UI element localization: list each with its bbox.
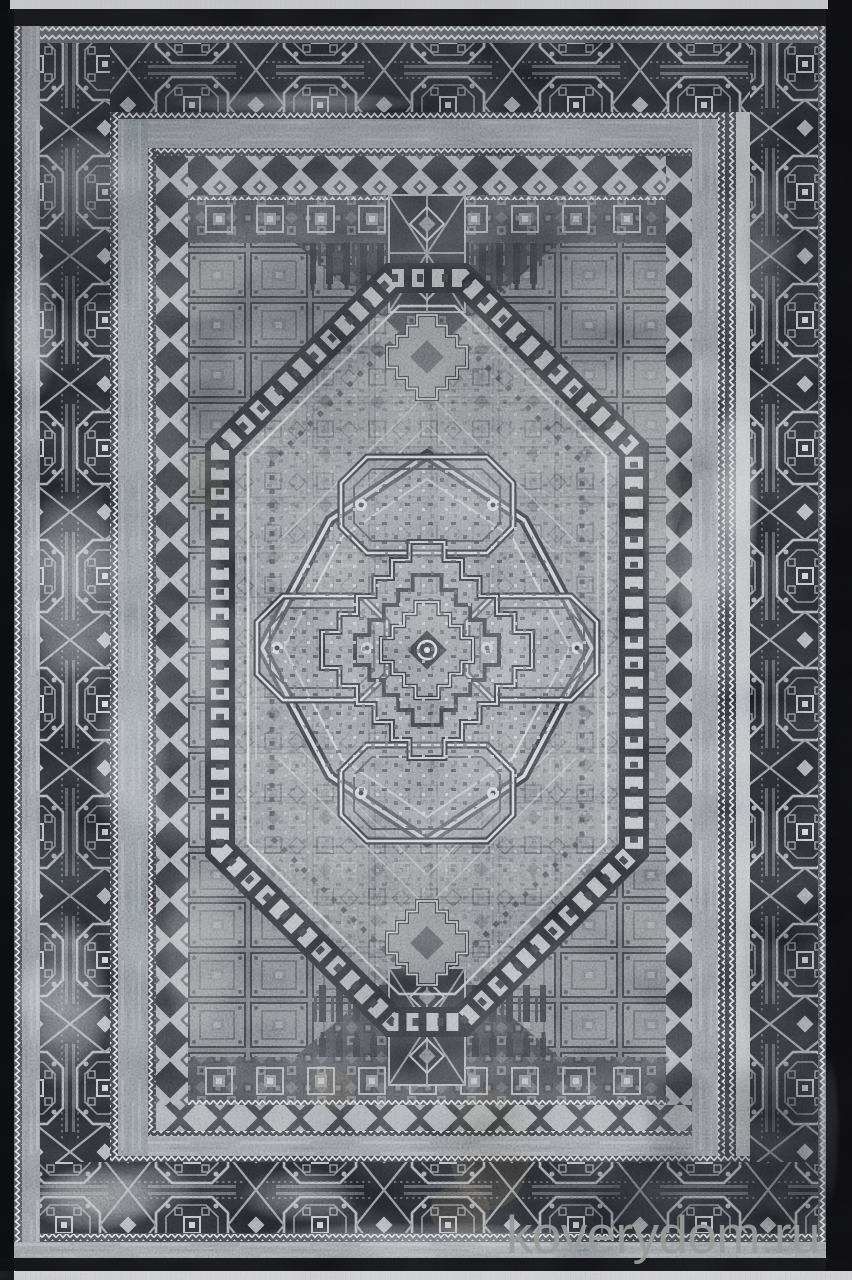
svg-text:koverydom.ru: koverydom.ru [506, 1206, 820, 1265]
